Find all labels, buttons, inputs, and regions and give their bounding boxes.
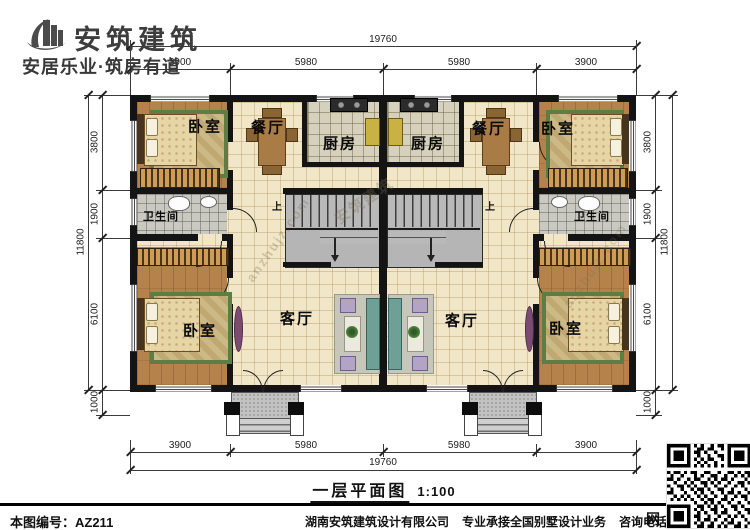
dim-total-width-bottom: 19760 (369, 457, 397, 468)
dim-total-height-left: 11800 (76, 228, 87, 255)
kitchen-sink (365, 118, 380, 146)
wall-bath-right-bottom-a (533, 234, 544, 241)
stove (400, 98, 438, 112)
plant (408, 326, 420, 338)
pillow (610, 139, 622, 157)
window-bottom-living-right (426, 385, 468, 392)
wall-bedroom-tr-a (533, 95, 539, 142)
window-left-bathroom (130, 198, 137, 226)
staircase-left-railing (286, 228, 378, 230)
room-label-kitchen: 厨房 (323, 133, 357, 154)
room-label-bathroom: 卫生间 (574, 208, 610, 224)
dim-line (130, 46, 636, 47)
window-bottom-bedroom-right (556, 385, 613, 392)
stairs-up-label: 上 (485, 198, 495, 213)
qr-code (666, 443, 750, 529)
pillow (146, 326, 158, 344)
dim-total-width-top: 19760 (369, 34, 397, 45)
window-right-bedroom-top (629, 120, 636, 172)
staircase-right-landing (388, 231, 446, 244)
wall-mid-left (130, 188, 233, 194)
dim-ext (636, 190, 662, 191)
porch-column (288, 402, 304, 415)
company-name: 湖南安筑建筑设计有限公司 (305, 513, 449, 530)
wall-bath-left-bottom-b (222, 234, 233, 241)
wardrobe (548, 168, 628, 188)
dim-right-seg: 1000 (643, 391, 654, 413)
tv-cabinet (525, 306, 534, 352)
wardrobe (137, 248, 229, 266)
wall-stairwell-right-bottom (435, 262, 483, 267)
dim-left-seg: 1000 (90, 391, 101, 413)
dim-line (102, 95, 103, 415)
dim-bottom-seg: 5980 (448, 440, 470, 451)
porch-post (464, 414, 478, 436)
dim-bottom-seg: 3900 (575, 440, 597, 451)
dim-line (672, 95, 673, 390)
wall-bath-right-bottom-b (568, 234, 636, 241)
staircase-right-arrowhead (427, 255, 435, 262)
room-label-living: 客厅 (280, 308, 314, 329)
bed-headboard (137, 298, 144, 350)
pillow (146, 139, 158, 157)
plant (346, 326, 358, 338)
room-label-dining: 餐厅 (251, 117, 285, 138)
window-bottom-bedroom-left (155, 385, 212, 392)
staircase-left-arrow-line (334, 238, 336, 256)
plan-scale: 1:100 (417, 484, 455, 499)
pillow (608, 303, 620, 321)
floor-plan-sheet: 安筑建筑 安居乐业·筑房有道 (0, 0, 750, 530)
wall-bath-left-bottom-a (130, 234, 198, 241)
porch-post (528, 414, 542, 436)
window-left-bedroom-bottom (130, 284, 137, 352)
dim-left-seg: 6100 (90, 303, 101, 325)
room-label-bedroom: 卧室 (549, 318, 583, 339)
dining-chair (262, 165, 282, 175)
wardrobe (140, 168, 220, 188)
dim-top-seg: 3900 (575, 57, 597, 68)
sofa (366, 298, 380, 370)
dining-chair (286, 128, 298, 142)
dim-bottom-seg: 5980 (295, 440, 317, 451)
dim-bottom-seg: 3900 (169, 440, 191, 451)
room-label-living: 客厅 (445, 310, 479, 331)
staircase-left-landing (320, 231, 378, 244)
window-bottom-living-left (300, 385, 342, 392)
wall-center-party (379, 95, 387, 392)
brand-logo-icon (24, 14, 72, 54)
wall-mid-right (533, 188, 636, 194)
kitchen-sink (388, 118, 403, 146)
dining-chair (510, 128, 522, 142)
wardrobe (539, 248, 631, 266)
dim-ext (636, 238, 662, 239)
bed-headboard (622, 114, 629, 164)
dim-top-seg: 5980 (448, 57, 470, 68)
room-label-bedroom: 卧室 (541, 118, 575, 139)
dim-right-seg: 1900 (643, 203, 654, 225)
service-text: 专业承接全国别墅设计业务 (462, 513, 606, 530)
wall-bath-left-door-jamb-a (227, 188, 233, 210)
wall-kitchen-left-bottom (302, 162, 382, 167)
porch-left-steps (237, 418, 293, 434)
room-label-bedroom: 卧室 (183, 320, 217, 341)
window-right-bedroom-bottom (629, 284, 636, 352)
wall-stairwell-left-bottom (283, 262, 331, 267)
tv-cabinet (234, 306, 243, 352)
brand-name: 安筑建筑 (74, 18, 202, 57)
window-right-bathroom (629, 198, 636, 226)
porch-post (290, 414, 304, 436)
web-label: 网 (646, 509, 660, 529)
pillow (608, 326, 620, 344)
wall-bath-right-door-jamb-a (533, 188, 539, 210)
staircase-right-flight (388, 195, 480, 227)
wall-kitchen-right-bottom (384, 162, 464, 167)
bed-headboard (622, 298, 629, 350)
staircase-left-arrowhead (331, 255, 339, 262)
armchair (412, 356, 428, 371)
dim-total-height-right: 11800 (660, 228, 671, 255)
dim-right-seg: 3800 (643, 131, 654, 153)
room-label-dining: 餐厅 (472, 118, 506, 139)
pillow (610, 118, 622, 136)
dim-line (130, 470, 636, 471)
window-left-bedroom-top (130, 120, 137, 172)
armchair (340, 298, 356, 313)
room-label-bedroom: 卧室 (188, 116, 222, 137)
porch-column (462, 402, 478, 415)
stove (330, 98, 368, 112)
wall-bedroom-br-b (533, 304, 539, 385)
staircase-right-railing (388, 228, 480, 230)
dining-chair (486, 165, 506, 175)
dim-line (655, 95, 656, 415)
porch-column (224, 402, 240, 415)
window-top-bedroom-right (558, 95, 618, 102)
porch-right-steps (475, 418, 531, 434)
dim-ext (636, 415, 662, 416)
bathroom-sink (551, 196, 568, 208)
staircase-right-arrow-line (430, 238, 432, 256)
dim-top-seg: 5980 (295, 57, 317, 68)
stairs-up-label: 上 (272, 198, 282, 213)
porch-post (226, 414, 240, 436)
room-label-bathroom: 卫生间 (143, 208, 179, 224)
dim-ext (84, 95, 130, 96)
sofa (388, 298, 402, 370)
bathroom-sink (200, 196, 217, 208)
dim-right-seg: 6100 (643, 303, 654, 325)
armchair (340, 356, 356, 371)
room-label-kitchen: 厨房 (411, 133, 445, 154)
wall-kitchen-right-side (459, 95, 464, 167)
dim-left-seg: 3800 (90, 131, 101, 153)
wall-kitchen-left-side (302, 95, 307, 167)
pillow (146, 303, 158, 321)
dining-chair (486, 108, 506, 118)
armchair (412, 298, 428, 313)
plan-title-text: 一层平面图 (310, 483, 409, 503)
window-top-bedroom-left (150, 95, 210, 102)
plan-title: 一层平面图1:100 (310, 477, 455, 501)
drawing-number: 本图编号：AZ211 (10, 512, 113, 530)
footer-bar: 本图编号：AZ211 湖南安筑建筑设计有限公司 专业承接全国别墅设计业务 咨询电… (0, 503, 750, 530)
pillow (146, 118, 158, 136)
brand-tagline: 安居乐业·筑房有道 (22, 53, 181, 79)
dim-left-seg: 1900 (90, 203, 101, 225)
porch-column (526, 402, 542, 415)
bed-headboard (137, 114, 144, 164)
